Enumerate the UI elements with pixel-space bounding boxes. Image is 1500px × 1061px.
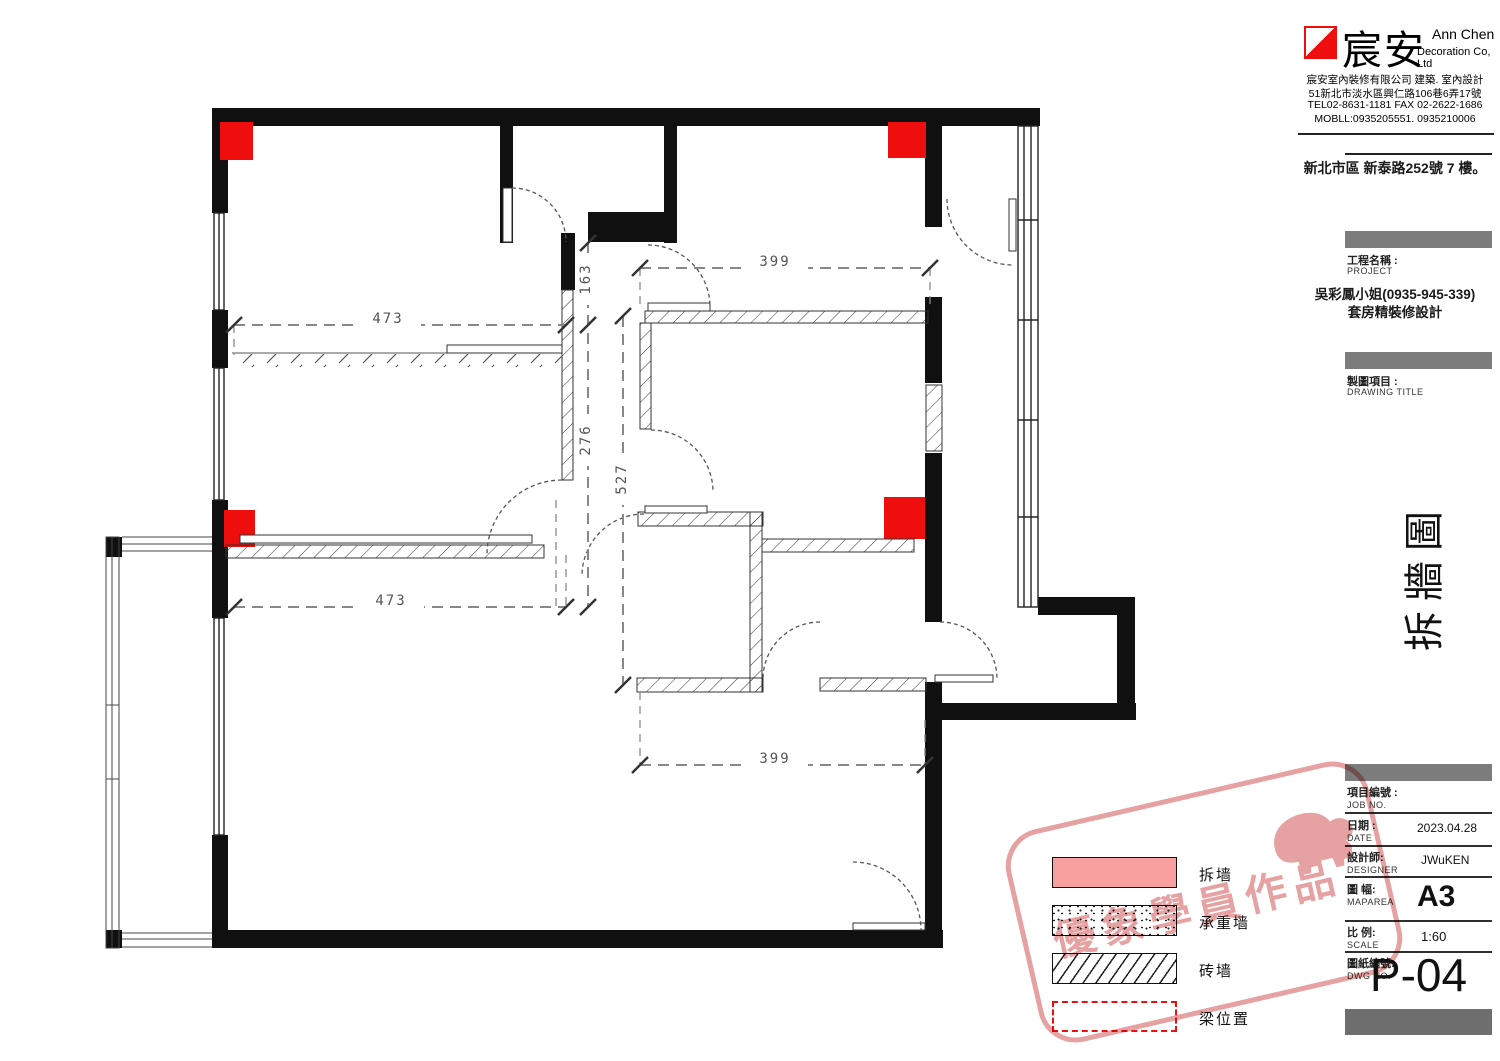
legend-label-bearing-wall: 承重墙 [1199,912,1250,933]
legend-label-brick-wall: 砖墙 [1199,960,1233,981]
legend-swatch-demolish-wall [1052,857,1177,888]
company-logo-icon [1304,26,1337,59]
company-name-en: Ann Chen [1432,26,1494,42]
legend-swatch-bearing-wall [1052,905,1177,936]
company-type-en: Decoration Co, Ltd [1417,46,1500,70]
dim-527: 527 [615,453,629,505]
row-label-en: JOB NO. [1347,800,1494,810]
project-description: 套房精裝修設計 [1290,301,1500,321]
project-label-en: PROJECT [1347,266,1393,276]
titleblock-row-date: 日期 : DATE 2023.04.28 [1345,814,1492,847]
door-leaves [240,188,1016,930]
maparea-value: A3 [1417,880,1455,914]
date-value: 2023.04.28 [1417,821,1477,835]
section-bar [1345,764,1492,781]
titleblock-row-jobno: 項目編號 : JOB NO. [1345,781,1492,814]
section-bar [1345,231,1492,248]
dim-276: 276 [579,414,593,466]
legend-swatch-brick-wall [1052,953,1177,984]
dim-399-bottom: 399 [742,752,808,766]
dim-163: 163 [579,253,593,305]
sheet-number: P-04 [1345,948,1492,1002]
titleblock-row-maparea: 圖 幅: MAPAREA A3 [1345,878,1492,922]
row-label-zh: 項目編號 : [1347,784,1494,800]
section-bar [1345,352,1492,369]
dim-473-top: 473 [355,312,421,326]
scale-value: 1:60 [1421,929,1446,944]
floor-plan [0,0,1340,1061]
drawing-title-label-en: DRAWING TITLE [1347,387,1424,397]
project-client: 吳彩鳳小姐(0935-945-339) [1290,283,1500,303]
company-info-line: MOBLL:0935205551. 0935210006 [1290,113,1500,125]
company-name-zh: 宸安 [1342,18,1426,76]
footer-bar [1345,1009,1492,1035]
site-address: 新北市區 新泰路252號 7 樓。 [1290,158,1500,178]
drawing-title-vertical: 拆牆圖 [1392,493,1438,659]
walls-brick-hatched [226,290,942,692]
demolition-plan-sheet: 473 399 163 276 527 473 399 拆墙 承重墙 砖墙 梁位… [0,0,1500,1061]
titleblock-row-designer: 設計師: DESIGNER JWuKEN [1345,847,1492,878]
dim-399-top: 399 [742,255,808,269]
balcony-rails [106,537,212,948]
designer-value: JWuKEN [1421,853,1469,867]
legend-swatch-beam-position [1052,1001,1177,1032]
demolished-wall-ticks [232,353,562,367]
divider [1298,133,1494,135]
dim-473-bottom: 473 [358,594,424,608]
company-info-line: TEL02-8631-1181 FAX 02-2622-1686 [1290,99,1500,111]
legend-label-demolish-wall: 拆墙 [1199,864,1233,885]
legend-label-beam-position: 梁位置 [1199,1008,1250,1029]
company-info-line: 宸安室內裝修有限公司 建築. 室內設計 [1290,72,1500,87]
walls-black [106,108,1136,948]
divider [1345,153,1492,155]
